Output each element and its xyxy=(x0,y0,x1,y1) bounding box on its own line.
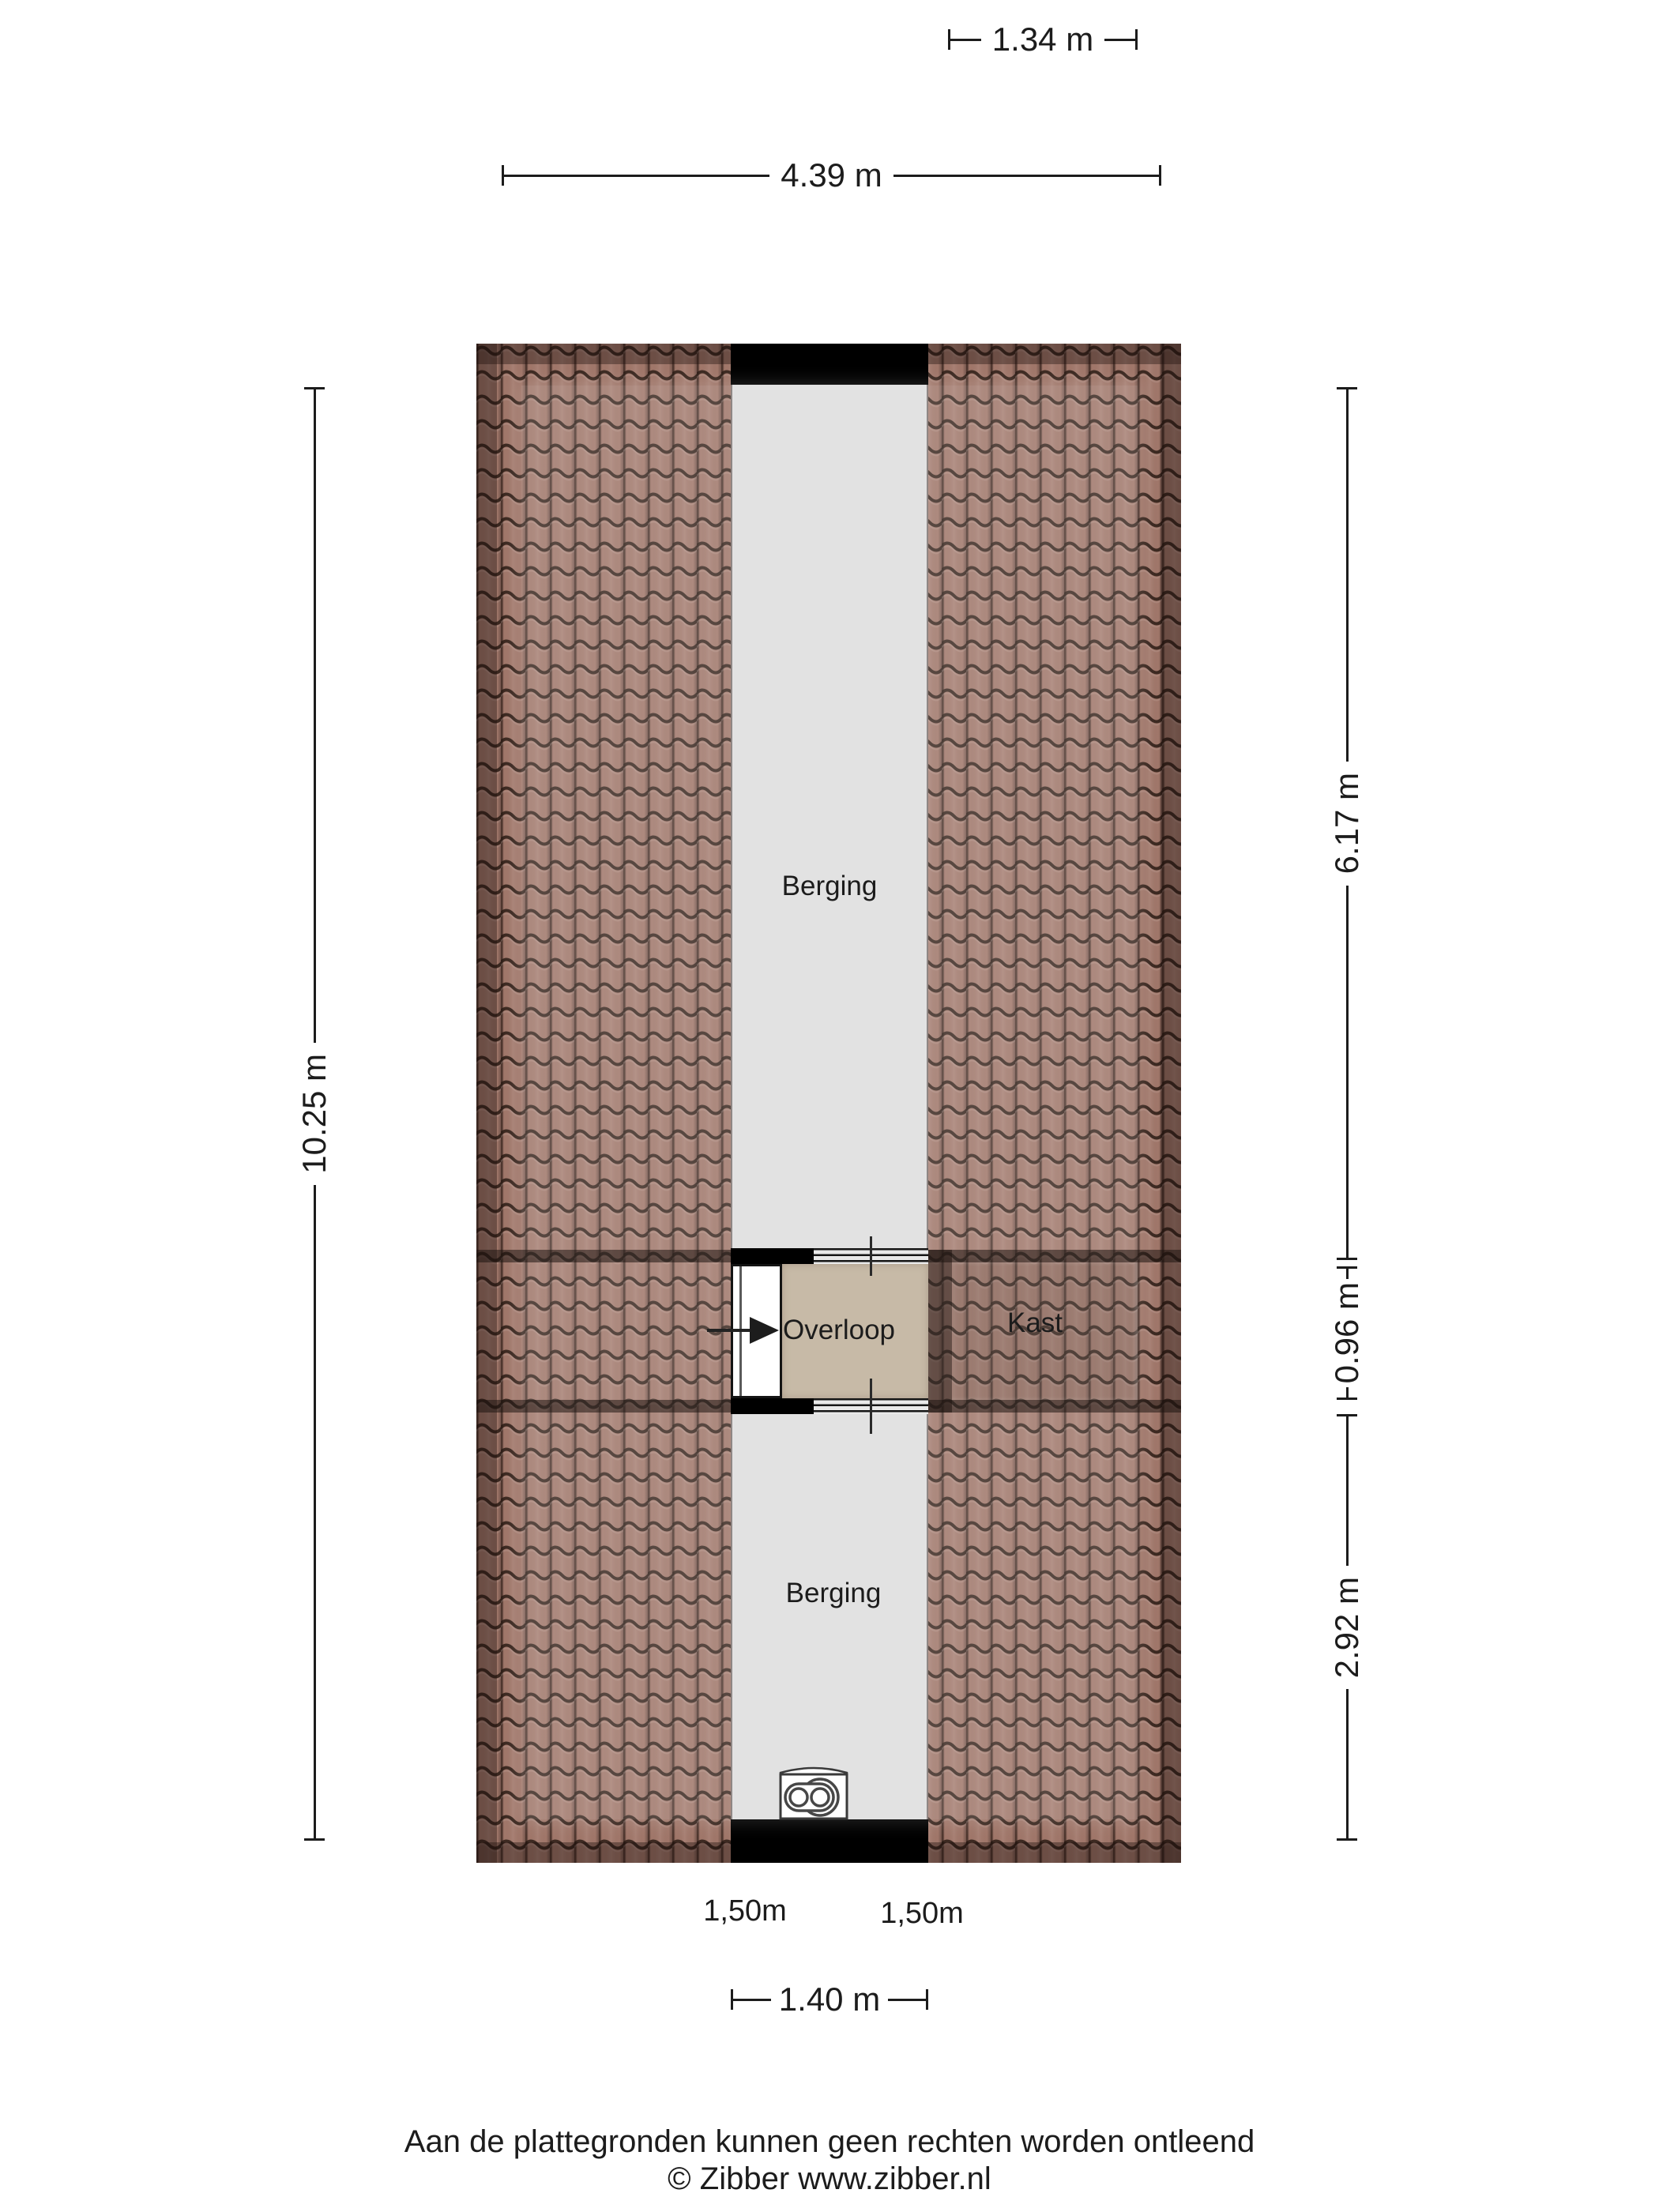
dimension-building-depth: 10.25 m xyxy=(295,387,333,1841)
dimension-right-lower-label: 2.92 m xyxy=(1330,1566,1364,1689)
footer-disclaimer: Aan de plattegronden kunnen geen rechten… xyxy=(0,2124,1659,2161)
window-top-centerline xyxy=(870,1236,872,1276)
dimension-building-depth-label: 10.25 m xyxy=(298,1043,331,1185)
floor-plan: Berging Overloop Kast Berging xyxy=(476,344,1181,1863)
overloop-wall-bottom xyxy=(731,1398,814,1414)
dimension-right-middle: 0.96 m xyxy=(1328,1266,1366,1400)
room-label-kast: Kast xyxy=(1007,1307,1063,1339)
overloop-wall-top xyxy=(731,1248,814,1264)
dimension-corridor-width-label: 1.40 m xyxy=(771,1983,888,2016)
footer-copyright: © Zibber www.zibber.nl xyxy=(0,2161,1659,2198)
headroom-label-right: 1,50m xyxy=(880,1897,964,1931)
footer: Aan de plattegronden kunnen geen rechten… xyxy=(0,2124,1659,2198)
kast-wall-band xyxy=(928,1250,952,1413)
arrow-right-icon xyxy=(750,1317,779,1344)
dimension-corridor-width: 1.40 m xyxy=(731,1981,928,2018)
boiler-icon xyxy=(778,1763,849,1821)
dimension-building-width: 4.39 m xyxy=(502,156,1161,194)
dimension-kast-width: 1.34 m xyxy=(948,21,1138,58)
stairs-direction-line xyxy=(707,1329,751,1332)
wall-bottom xyxy=(731,1819,928,1863)
headroom-label-left: 1,50m xyxy=(703,1894,787,1928)
window-bottom-centerline xyxy=(870,1379,872,1434)
dimension-right-upper-label: 6.17 m xyxy=(1330,762,1364,885)
room-label-berging-top: Berging xyxy=(782,871,878,902)
dimension-right-middle-label: 0.96 m xyxy=(1330,1279,1364,1386)
dimension-kast-width-label: 1.34 m xyxy=(981,23,1104,56)
dimension-right-lower: 2.92 m xyxy=(1328,1414,1366,1841)
wall-top xyxy=(731,344,928,385)
room-label-overloop: Overloop xyxy=(783,1315,895,1346)
room-label-berging-bottom: Berging xyxy=(786,1578,882,1609)
dimension-building-width-label: 4.39 m xyxy=(769,159,893,192)
dimension-right-upper: 6.17 m xyxy=(1328,387,1366,1260)
